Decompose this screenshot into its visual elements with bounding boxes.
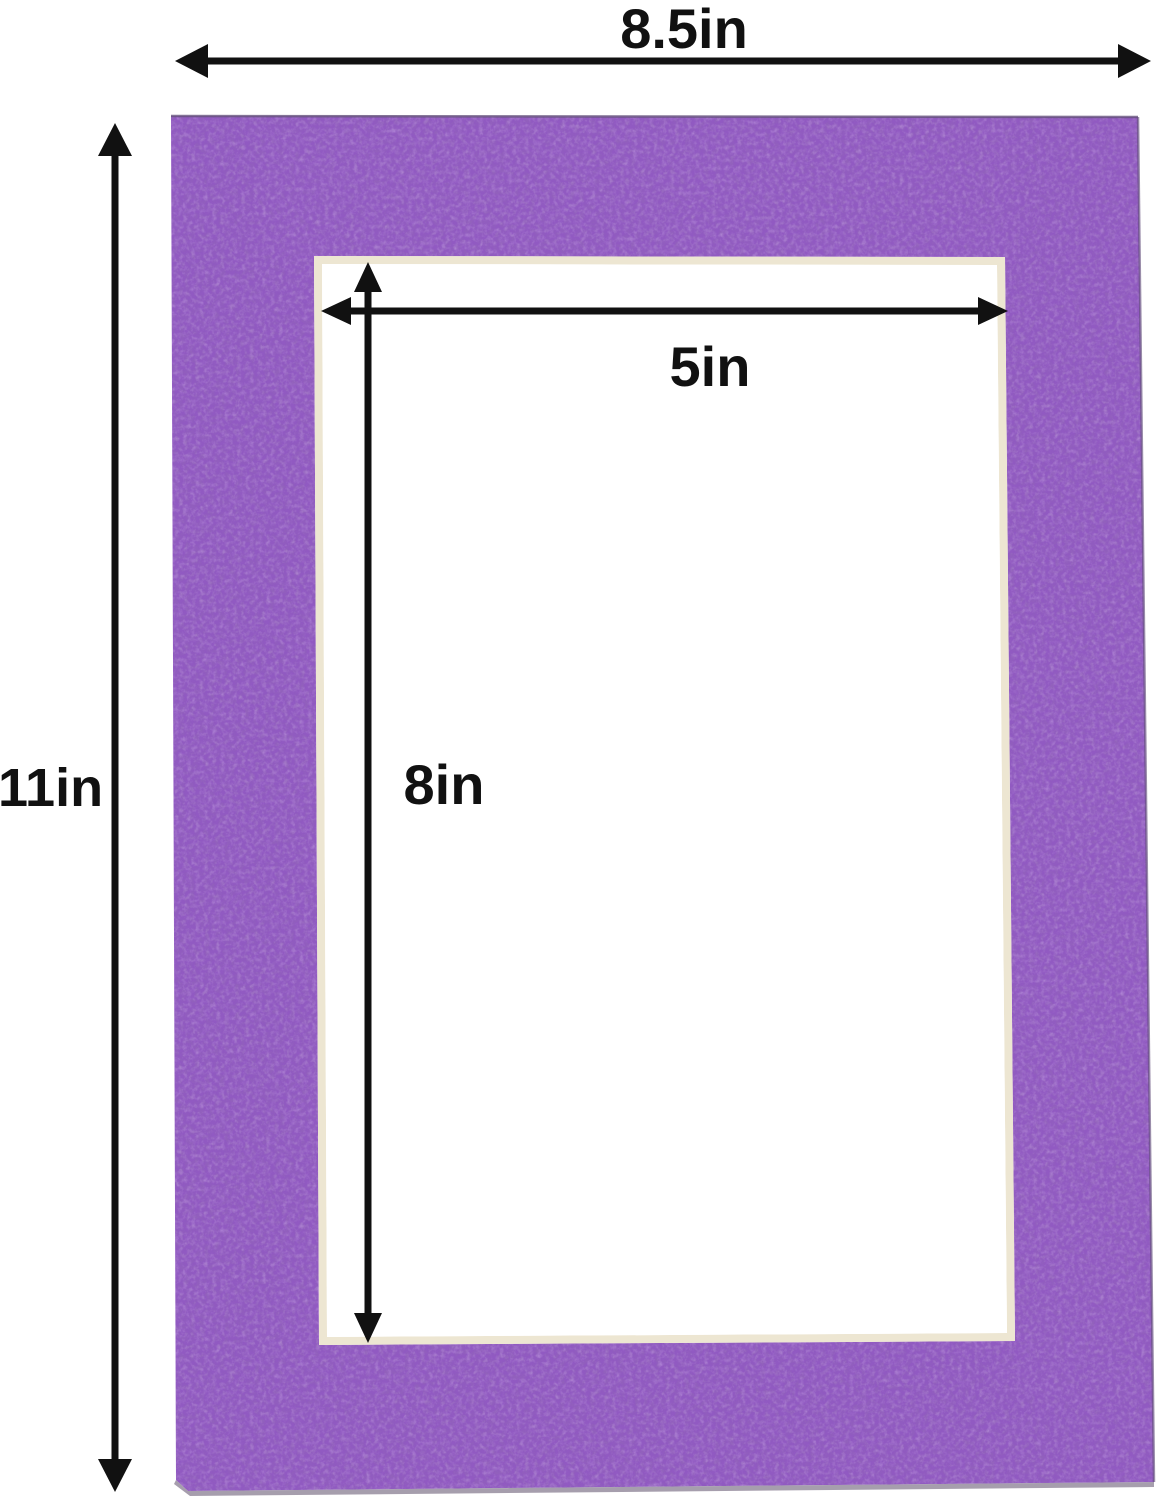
- svg-text:8.5in: 8.5in: [620, 0, 748, 60]
- svg-text:5in: 5in: [670, 335, 751, 398]
- svg-text:8in: 8in: [404, 753, 485, 816]
- svg-text:11in: 11in: [0, 758, 103, 818]
